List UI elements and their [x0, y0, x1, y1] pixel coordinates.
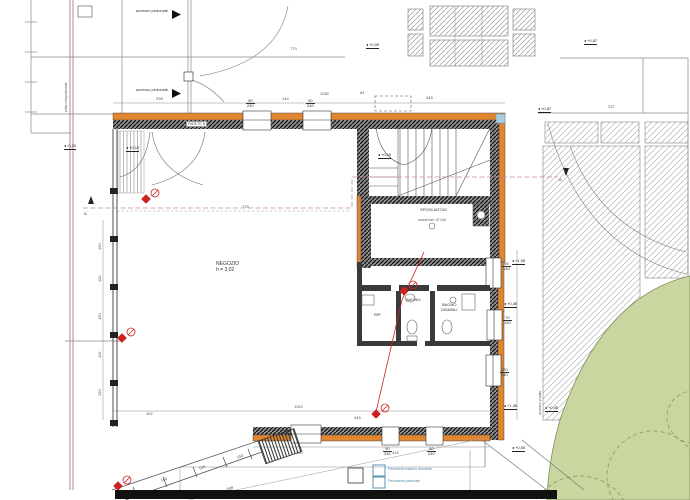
opening-size: 90240 — [427, 447, 436, 456]
elevation-marker: ◂+0,87 — [584, 38, 597, 45]
opening-size: 90240 — [383, 447, 392, 456]
room-bagno-disabili: BAGNO DISABILI — [441, 303, 457, 312]
elevation-arrow-icon: ◂ — [545, 405, 547, 410]
dim-label: 190 — [97, 243, 102, 250]
elevation-marker: ◂+0,45 — [545, 405, 558, 412]
elevation-marker: ◂+0,36 — [504, 301, 517, 308]
plan-linework — [0, 0, 690, 500]
dim-label: 448 — [426, 95, 433, 100]
building-walls — [110, 96, 505, 445]
opening-size: 90240 — [246, 99, 255, 108]
elevation-arrow-icon: ◂ — [64, 143, 66, 148]
elevation-marker: ◂+1,08 — [512, 258, 525, 265]
dim-label: 1082 — [320, 91, 329, 96]
dim-label: 110 — [97, 352, 102, 358]
section-arrow-left — [88, 196, 94, 204]
elevation-marker: ◂+0,87 — [538, 106, 551, 113]
section-label-right: A — [559, 178, 562, 183]
room-rip: RIP. — [374, 313, 381, 318]
access-arrows — [172, 10, 181, 98]
dim-label: 775 — [242, 204, 249, 209]
elevation-arrow-icon: ◂ — [512, 258, 514, 263]
floor-plan-canvas: accesso pedonale accesso pedonale pista … — [0, 0, 690, 500]
elevation-arrow-icon: ◂ — [538, 106, 540, 111]
elevation-arrow-icon: ◂ — [584, 38, 586, 43]
room-bagno: BAGNO — [406, 298, 420, 303]
elevation-arrow-icon: ◂ — [366, 42, 368, 47]
dim-label: 415 — [392, 450, 399, 455]
dim-label: 1153 — [294, 404, 303, 409]
hatched-blocks-top — [408, 6, 535, 66]
parete-b-label: PARETE B — [186, 121, 207, 127]
fixtures — [362, 204, 489, 341]
legend-item-1: Pavimento esterno drenante — [388, 467, 432, 471]
section-label-left: A — [84, 212, 87, 217]
elevation-marker: ◂-0,20 — [64, 143, 76, 150]
elevation-marker: ◂+0,05 — [512, 445, 525, 452]
dim-label: 190 — [97, 313, 102, 320]
flue-symbol — [429, 223, 435, 229]
opening-size: 90140 — [502, 262, 511, 271]
staircase — [369, 127, 490, 196]
elevation-marker: ◂+1,36 — [504, 403, 517, 410]
opening-size: 120240 — [500, 368, 509, 377]
elevation-marker: ◂+0,05 — [366, 42, 379, 49]
pavement-label: accesso privato — [538, 391, 542, 415]
boundary-label: pista ciclopedonale — [64, 82, 68, 112]
elevation-arrow-icon: ◂ — [504, 403, 506, 408]
titleblock-bar — [115, 490, 557, 499]
elevation-marker: ◂+0,10 — [378, 152, 391, 159]
flue-dashed-outline — [375, 96, 411, 111]
dim-label: 446 — [354, 415, 361, 420]
dim-label: 84 — [360, 90, 364, 95]
room-spogliatoio: SPOGLIATOIO — [420, 208, 447, 213]
elevation-arrow-icon: ◂ — [126, 145, 128, 150]
elevation-arrow-icon: ◂ — [504, 301, 506, 306]
access-label-1: accesso pedonale — [126, 9, 168, 14]
access-label-2: accesso pedonale — [126, 88, 168, 93]
dim-label: 773 — [290, 46, 297, 51]
spogliatoio-note: canna fum. Ø 140 — [418, 218, 446, 222]
opening-size: 90240 — [306, 99, 315, 108]
property-boundary-line — [70, 0, 73, 490]
blue-element — [496, 114, 505, 123]
dim-label: 160 — [296, 450, 303, 455]
opening-size: 70140 — [503, 316, 512, 325]
elevation-marker: ◂+0,10 — [126, 145, 139, 152]
windows — [243, 111, 502, 445]
elevation-arrow-icon: ◂ — [378, 152, 380, 157]
dim-label: 190 — [97, 389, 102, 396]
entry-vestibule — [118, 131, 205, 193]
dim-label: 298 — [156, 96, 163, 101]
room-negozio: NEGOZIO h = 3,02 — [216, 262, 239, 274]
dim-label: 402 — [146, 411, 153, 416]
dim-label: 110 — [97, 276, 102, 282]
dim-label: 237 — [608, 104, 615, 109]
legend-item-2: Pavimento pedonale — [388, 479, 420, 483]
elevation-arrow-icon: ◂ — [512, 445, 514, 450]
dim-label: 144 — [282, 96, 289, 101]
